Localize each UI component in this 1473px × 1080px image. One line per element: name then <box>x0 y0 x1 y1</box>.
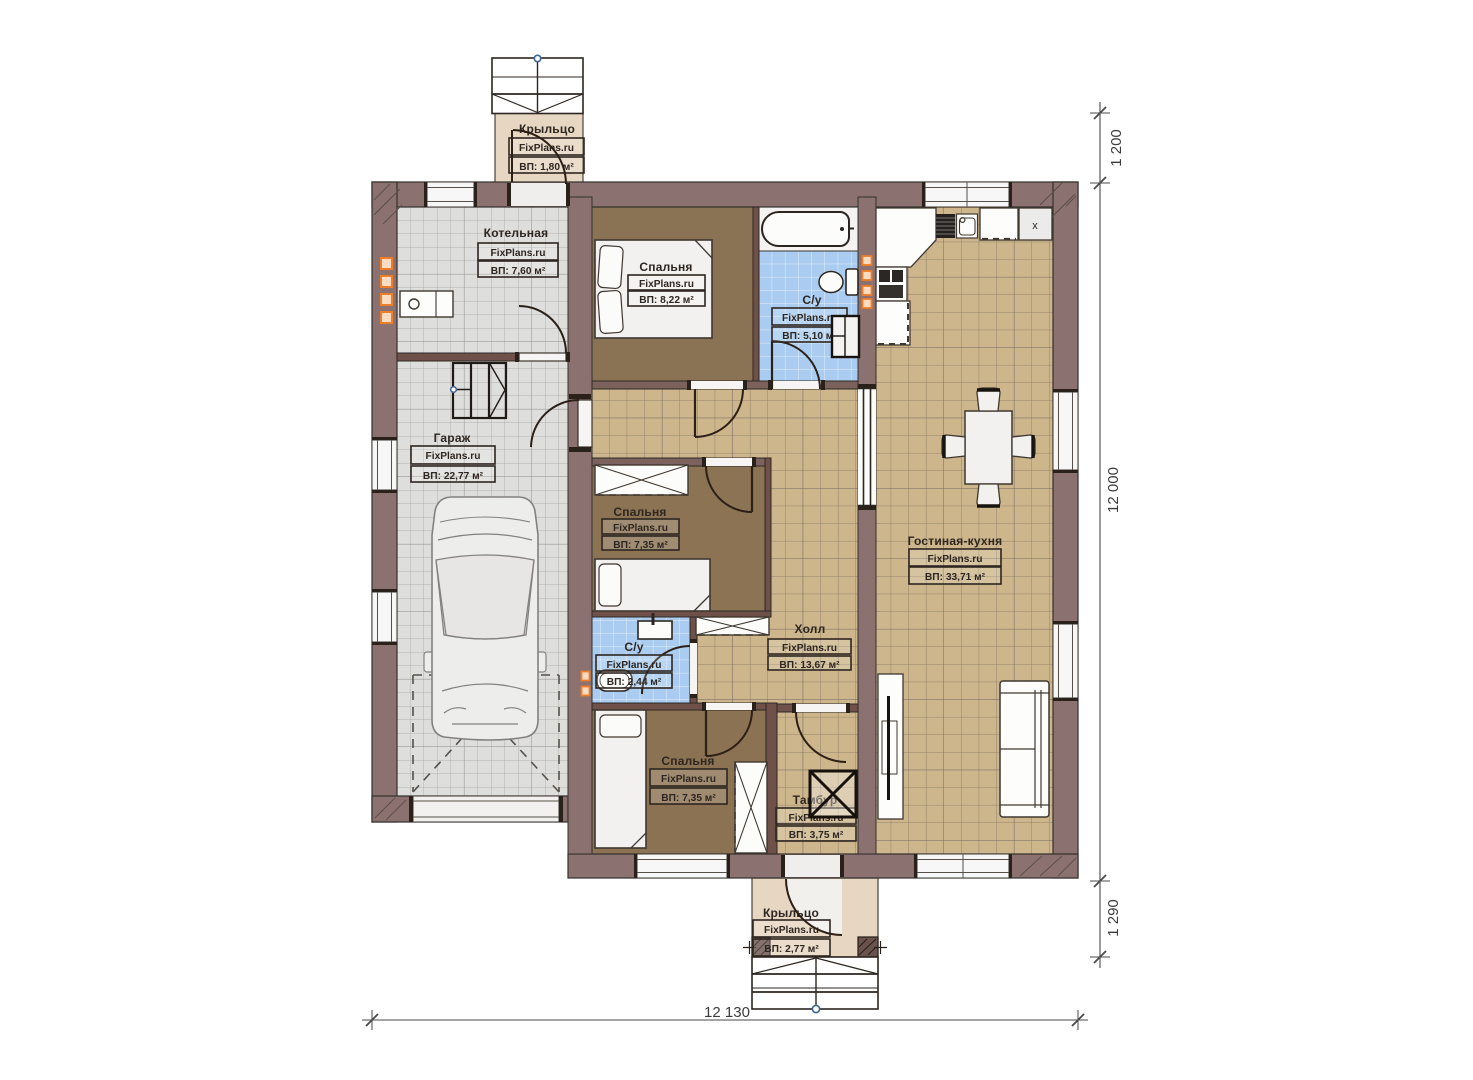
svg-text:12 000: 12 000 <box>1105 467 1122 513</box>
svg-text:ВП: 1,80 м²: ВП: 1,80 м² <box>519 162 574 173</box>
svg-text:ВП: 7,35 м²: ВП: 7,35 м² <box>613 540 668 551</box>
svg-text:12 130: 12 130 <box>704 1004 750 1021</box>
svg-text:FixPlans.ru: FixPlans.ru <box>928 554 983 565</box>
svg-text:Котельная: Котельная <box>484 226 549 240</box>
svg-text:ВП: 2,44 м²: ВП: 2,44 м² <box>607 677 662 688</box>
svg-text:FixPlans.ru: FixPlans.ru <box>782 643 837 654</box>
svg-text:ВП: 5,10 м²: ВП: 5,10 м² <box>782 331 837 342</box>
svg-text:FixPlans.ru: FixPlans.ru <box>613 523 668 534</box>
svg-text:FixPlans.ru: FixPlans.ru <box>491 248 546 259</box>
svg-text:FixPlans.ru: FixPlans.ru <box>782 313 837 324</box>
svg-text:Спальня: Спальня <box>613 505 666 519</box>
svg-text:ВП: 13,67 м²: ВП: 13,67 м² <box>779 660 840 671</box>
svg-text:FixPlans.ru: FixPlans.ru <box>519 143 574 154</box>
svg-text:FixPlans.ru: FixPlans.ru <box>661 774 716 785</box>
svg-text:ВП: 8,22 м²: ВП: 8,22 м² <box>639 295 694 306</box>
svg-text:Крыльцо: Крыльцо <box>519 122 575 136</box>
svg-text:Гостиная-кухня: Гостиная-кухня <box>908 534 1003 548</box>
svg-text:Холл: Холл <box>795 622 826 636</box>
svg-text:1 290: 1 290 <box>1105 899 1122 937</box>
svg-text:FixPlans.ru: FixPlans.ru <box>639 279 694 290</box>
svg-text:ВП: 7,60 м²: ВП: 7,60 м² <box>491 266 546 277</box>
svg-text:x: x <box>1032 220 1038 232</box>
svg-text:Гараж: Гараж <box>434 431 471 445</box>
svg-text:ВП: 2,77 м²: ВП: 2,77 м² <box>764 944 819 955</box>
svg-text:ВП: 7,35 м²: ВП: 7,35 м² <box>661 793 716 804</box>
svg-text:FixPlans.ru: FixPlans.ru <box>426 451 481 462</box>
svg-text:С/у: С/у <box>624 640 643 654</box>
svg-text:1 200: 1 200 <box>1108 129 1125 167</box>
svg-text:ВП: 33,71 м²: ВП: 33,71 м² <box>925 572 986 583</box>
svg-text:Спальня: Спальня <box>639 260 692 274</box>
svg-text:Спальня: Спальня <box>661 754 714 768</box>
svg-text:FixPlans.ru: FixPlans.ru <box>607 660 662 671</box>
svg-text:С/у: С/у <box>802 293 821 307</box>
svg-text:ВП: 22,77 м²: ВП: 22,77 м² <box>423 471 484 482</box>
svg-text:Крыльцо: Крыльцо <box>763 906 819 920</box>
svg-text:ВП: 3,75 м²: ВП: 3,75 м² <box>789 830 844 841</box>
